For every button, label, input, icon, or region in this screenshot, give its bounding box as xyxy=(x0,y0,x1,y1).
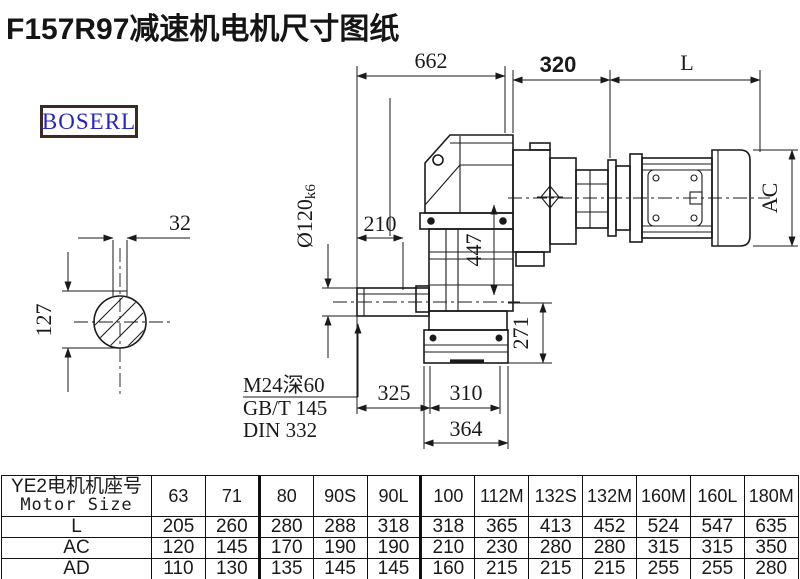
cell: 215 xyxy=(475,559,529,579)
col-header: 160M xyxy=(637,476,691,517)
dim-label-210: 210 xyxy=(364,211,397,236)
drawing-page: F157R97减速机电机尺寸图纸 BOSERL xyxy=(0,0,800,579)
gearbox-side-view xyxy=(513,143,608,266)
cell: 190 xyxy=(313,538,367,559)
cell: 145 xyxy=(313,559,367,579)
dim-label-127: 127 xyxy=(31,304,56,337)
cell: 365 xyxy=(475,517,529,538)
cell: 255 xyxy=(637,559,691,579)
col-header: 100 xyxy=(421,476,475,517)
dim-label-AC: AC xyxy=(757,183,782,214)
row-label: AD xyxy=(2,559,152,579)
cell: 413 xyxy=(529,517,583,538)
cell: 120 xyxy=(152,538,206,559)
cell: 145 xyxy=(205,538,259,559)
cell: 280 xyxy=(529,538,583,559)
dim-label-L: L xyxy=(680,50,693,75)
bolt-dot xyxy=(496,335,503,342)
row-label: AC xyxy=(2,538,152,559)
cell: 524 xyxy=(637,517,691,538)
cell: 205 xyxy=(152,517,206,538)
dim-motor-length: L xyxy=(610,50,760,152)
dim-shaft-dia: Ø120k6 xyxy=(292,184,357,358)
cell: 160 xyxy=(421,559,475,579)
cell: 260 xyxy=(205,517,259,538)
motor-size-table: YE2电机机座号 Motor Size 63 71 80 90S 90L 100… xyxy=(1,475,799,579)
dim-key-width: 32 xyxy=(78,210,191,238)
table-row-L: L 205 260 280 288 318 318 365 413 452 52… xyxy=(2,517,799,538)
cell: 318 xyxy=(367,517,421,538)
col-header: 90S xyxy=(313,476,367,517)
dim-label-310: 310 xyxy=(450,380,483,405)
cell: 635 xyxy=(744,517,798,538)
col-header: 112M xyxy=(475,476,529,517)
technical-drawing: 32 127 xyxy=(0,0,800,475)
header-cn: YE2电机机座号 xyxy=(2,477,151,497)
dim-center-height: 447 xyxy=(461,205,494,295)
col-header: 132S xyxy=(529,476,583,517)
table-header-cell: YE2电机机座号 Motor Size xyxy=(2,476,152,517)
table-row-AD: AD 110 130 135 145 145 160 215 215 215 2… xyxy=(2,559,799,579)
cell: 288 xyxy=(313,517,367,538)
col-header: 63 xyxy=(152,476,206,517)
dim-adapter-length: 320 xyxy=(513,52,610,158)
note-m24: M24深60 xyxy=(243,373,325,397)
col-header: 180M xyxy=(744,476,798,517)
bolt-dot xyxy=(430,335,437,342)
cell: 135 xyxy=(259,559,313,579)
cell: 280 xyxy=(583,538,637,559)
cell: 318 xyxy=(421,517,475,538)
col-header: 160L xyxy=(690,476,744,517)
cell: 215 xyxy=(529,559,583,579)
bolt-dot xyxy=(427,217,435,225)
input-section-marker xyxy=(537,182,563,212)
dim-label-shaft-dia: Ø120k6 xyxy=(292,184,319,248)
cell: 215 xyxy=(583,559,637,579)
dim-output-height: 271 xyxy=(508,303,552,363)
cell: 230 xyxy=(475,538,529,559)
cell: 315 xyxy=(690,538,744,559)
cell: 145 xyxy=(367,559,421,579)
dim-label-662: 662 xyxy=(415,48,448,73)
cell: 547 xyxy=(690,517,744,538)
dim-foot-left: 325 xyxy=(357,380,430,408)
cell: 280 xyxy=(259,517,313,538)
cell: 190 xyxy=(367,538,421,559)
motor-side-view xyxy=(508,150,770,246)
shaft-end-note: M24深60 GB/T 145 DIN 332 xyxy=(243,324,358,442)
col-header: 90L xyxy=(367,476,421,517)
cell: 210 xyxy=(421,538,475,559)
note-gbt: GB/T 145 xyxy=(243,396,327,420)
cell: 452 xyxy=(583,517,637,538)
dim-label-325: 325 xyxy=(378,380,411,405)
dim-label-364: 364 xyxy=(450,416,483,441)
cell: 255 xyxy=(690,559,744,579)
dim-motor-height: AC xyxy=(753,150,798,246)
dim-label-271: 271 xyxy=(508,317,533,350)
bolt-dot xyxy=(499,217,507,225)
note-din: DIN 332 xyxy=(243,418,317,442)
cell: 110 xyxy=(152,559,206,579)
table-header-row: YE2电机机座号 Motor Size 63 71 80 90S 90L 100… xyxy=(2,476,799,517)
dim-shaft-ext: 210 xyxy=(357,211,403,290)
shaft-section-view: 32 127 xyxy=(31,210,191,407)
col-header: 71 xyxy=(205,476,259,517)
cell: 350 xyxy=(744,538,798,559)
row-label: L xyxy=(2,517,152,538)
cell: 130 xyxy=(205,559,259,579)
cell: 170 xyxy=(259,538,313,559)
dim-label-447: 447 xyxy=(461,234,486,267)
dim-label-320: 320 xyxy=(540,52,577,77)
col-header: 132M xyxy=(583,476,637,517)
cell: 280 xyxy=(744,559,798,579)
dim-foot-right: 310 xyxy=(430,366,500,414)
col-header: 80 xyxy=(259,476,313,517)
header-en: Motor Size xyxy=(2,497,151,515)
bolt-hole xyxy=(433,155,443,165)
dim-label-32: 32 xyxy=(169,210,191,235)
table-row-AC: AC 120 145 170 190 190 210 230 280 280 3… xyxy=(2,538,799,559)
gearbox-front-view xyxy=(333,98,520,363)
cell: 315 xyxy=(637,538,691,559)
